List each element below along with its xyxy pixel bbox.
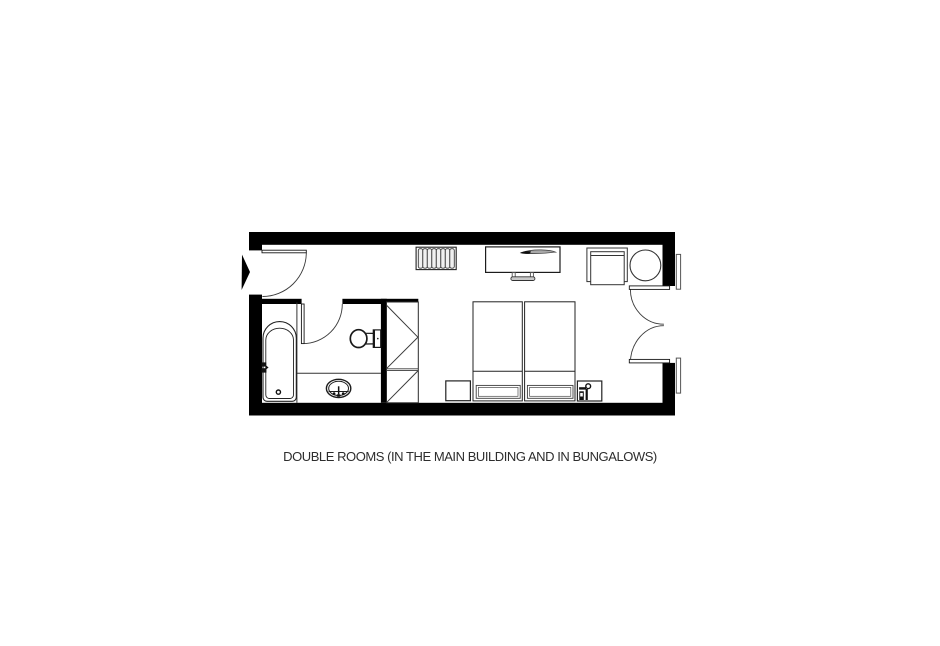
svg-text:DOUBLE ROOMS (IN THE MAIN BUIL: DOUBLE ROOMS (IN THE MAIN BUILDING AND I… bbox=[283, 449, 657, 464]
